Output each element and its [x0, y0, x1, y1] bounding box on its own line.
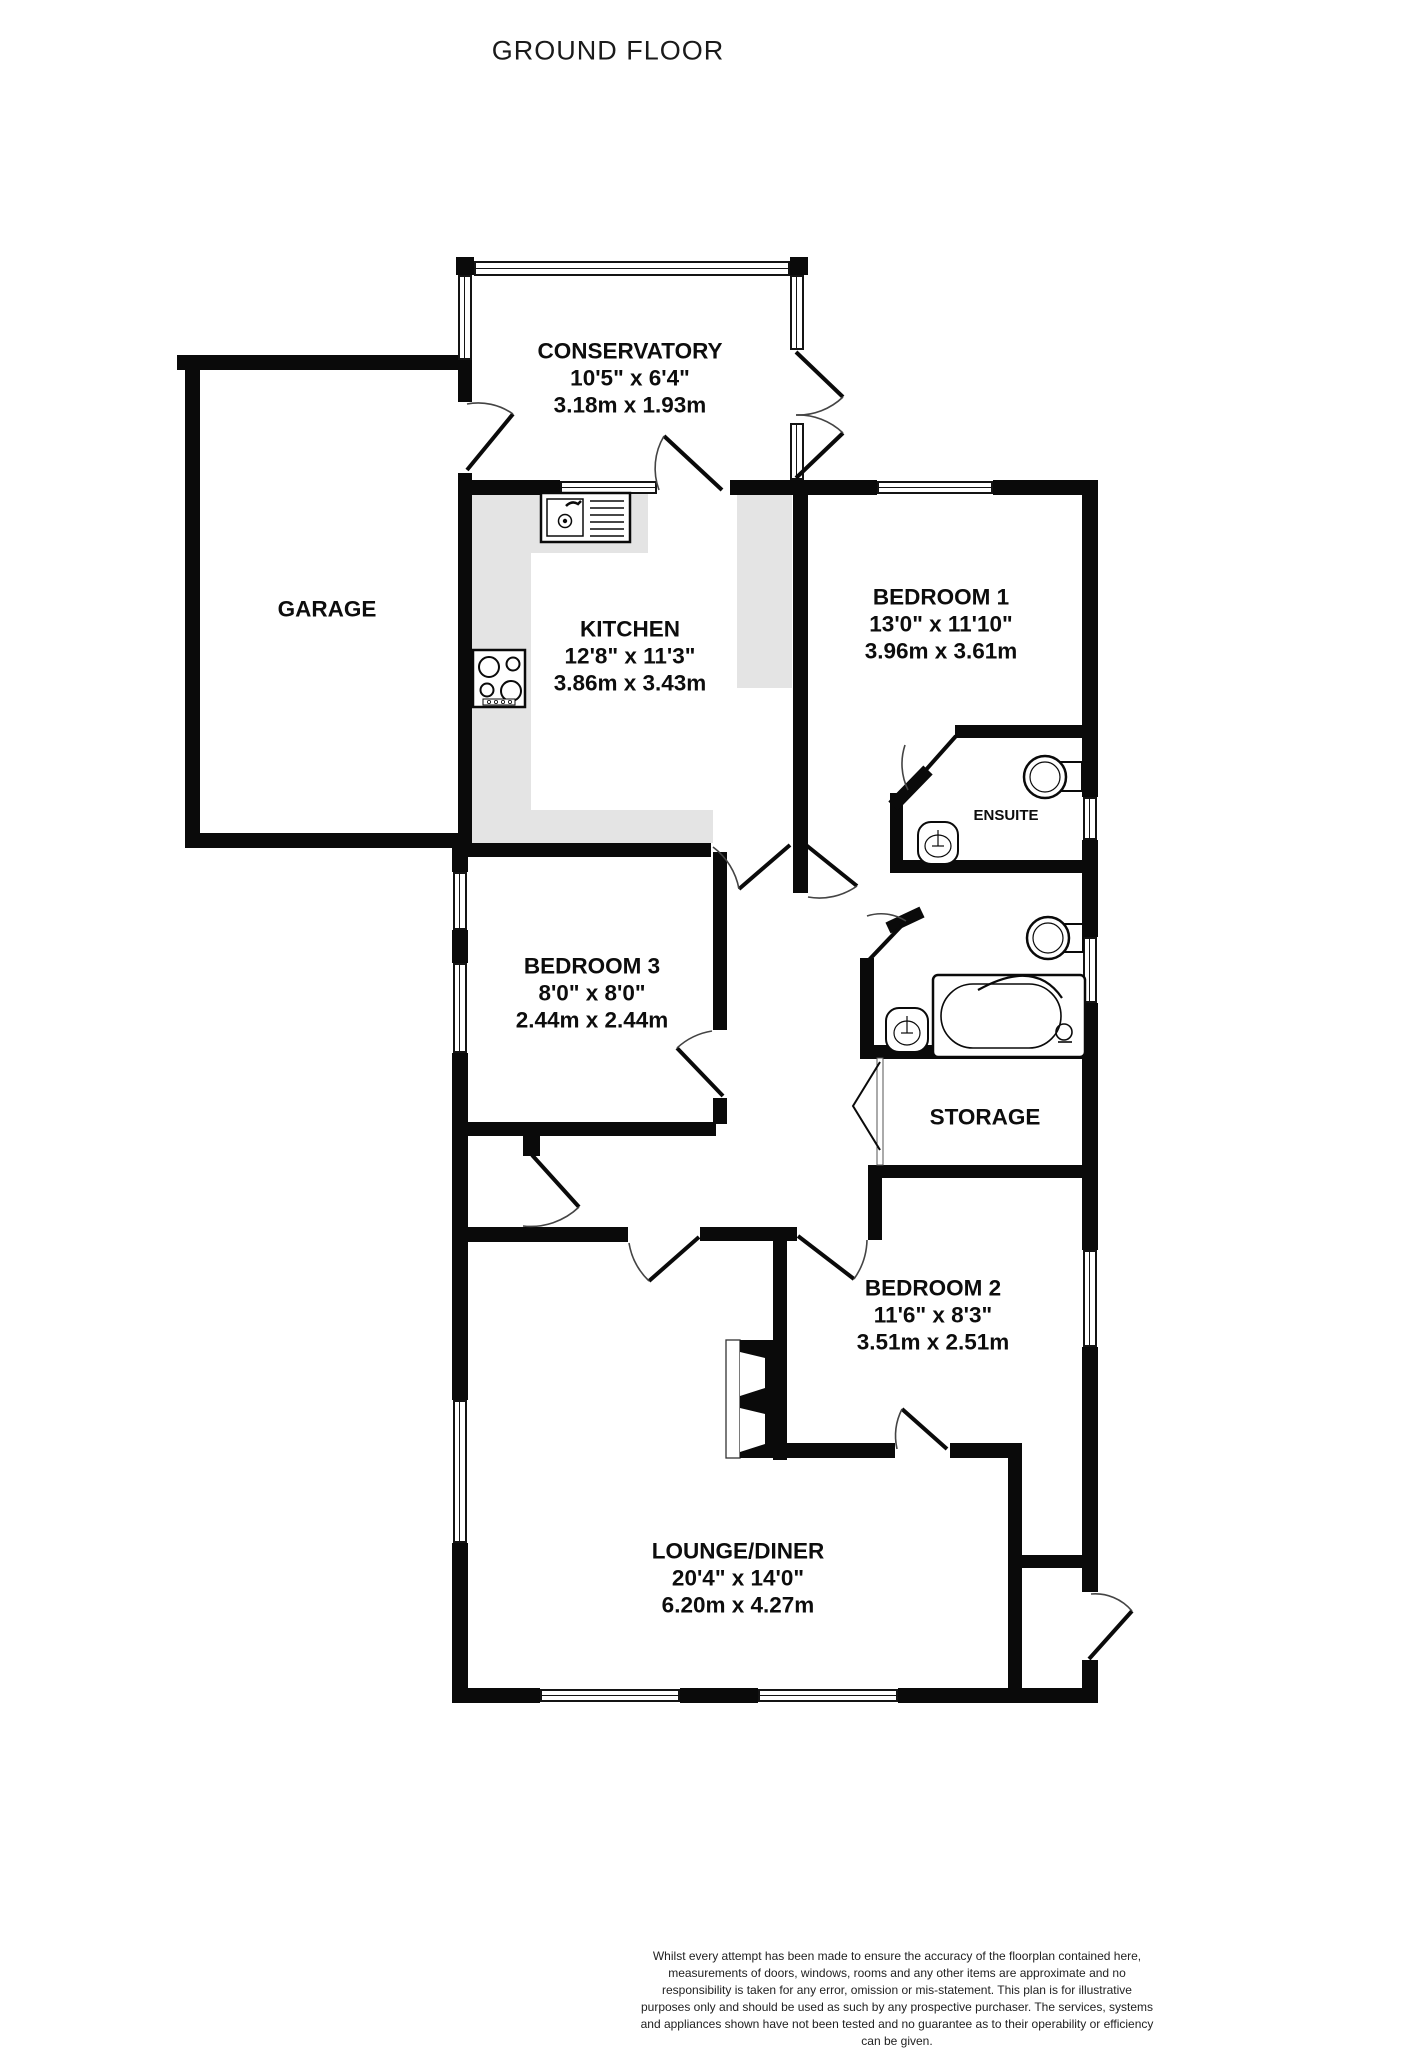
wall — [458, 370, 472, 402]
wall — [890, 860, 1098, 873]
room-label-bedroom2: BEDROOM 2 11'6" x 8'3" 3.51m x 2.51m — [857, 1275, 1010, 1356]
door-leaf — [649, 1237, 699, 1281]
window — [758, 1689, 898, 1702]
kitchen-counter-top — [531, 493, 648, 553]
wall — [452, 1227, 468, 1400]
room-size-imperial: 8'0" x 8'0" — [516, 980, 669, 1007]
door-leaf — [739, 845, 790, 889]
room-size-imperial: 10'5" x 6'4" — [537, 365, 722, 392]
chimney-breast — [740, 1340, 774, 1458]
room-size-imperial: 13'0" x 11'10" — [865, 611, 1018, 638]
door-leaf — [467, 414, 513, 470]
room-label-lounge: LOUNGE/DINER 20'4" x 14'0" 6.20m x 4.27m — [652, 1538, 825, 1619]
window — [560, 481, 657, 494]
door-leaf — [677, 1048, 723, 1096]
room-name: STORAGE — [930, 1104, 1041, 1131]
room-size-imperial: 20'4" x 14'0" — [652, 1565, 825, 1592]
window — [790, 423, 804, 480]
disclaimer: Whilst every attempt has been made to en… — [637, 1948, 1157, 2048]
room-name: CONSERVATORY — [537, 338, 722, 365]
wall — [458, 480, 560, 495]
wall — [1082, 480, 1098, 797]
window — [1083, 797, 1097, 840]
door-leaf — [1089, 1611, 1132, 1659]
room-label-bedroom3: BEDROOM 3 8'0" x 8'0" 2.44m x 2.44m — [516, 953, 669, 1034]
wall — [540, 1227, 628, 1242]
wall-corner-post — [456, 257, 474, 275]
room-label-garage: GARAGE — [278, 596, 377, 623]
wall — [793, 494, 808, 893]
wall — [452, 1543, 468, 1703]
wall — [730, 480, 808, 495]
room-size-metric: 6.20m x 4.27m — [652, 1592, 825, 1619]
kitchen-counter-right — [737, 495, 792, 688]
room-name: ENSUITE — [973, 807, 1038, 825]
wall-angled — [888, 912, 922, 928]
room-label-bedroom1: BEDROOM 1 13'0" x 11'10" 3.96m x 3.61m — [865, 584, 1018, 665]
wall — [458, 1227, 540, 1242]
wall — [860, 1045, 1098, 1059]
room-name: BEDROOM 2 — [857, 1275, 1010, 1302]
room-size-metric: 3.18m x 1.93m — [537, 392, 722, 419]
storage-jamb — [877, 1058, 883, 1165]
room-label-storage: STORAGE — [930, 1104, 1041, 1131]
door-leaf — [798, 1236, 854, 1279]
wall — [1008, 1452, 1022, 1703]
door-arc — [808, 886, 857, 898]
room-name: LOUNGE/DINER — [652, 1538, 825, 1565]
window — [1083, 1250, 1097, 1347]
kitchen-counter-left — [472, 482, 531, 843]
door-leaf — [867, 921, 906, 962]
wall — [868, 1165, 882, 1240]
wall — [860, 958, 874, 1058]
chimney-recess — [740, 1408, 765, 1452]
page-title: GROUND FLOOR — [492, 36, 725, 67]
wall — [185, 833, 472, 848]
bifold-door — [853, 1062, 880, 1150]
room-size-metric: 3.86m x 3.43m — [554, 670, 707, 697]
wall — [808, 480, 877, 495]
door-leaf — [664, 436, 722, 490]
toilet-icon — [918, 822, 958, 864]
door-leaf — [902, 1409, 947, 1449]
basin-icon — [1024, 756, 1082, 798]
floorplan-canvas: GROUND FLOOR — [0, 0, 1408, 2048]
door-leaf — [532, 1155, 579, 1207]
wall — [773, 1443, 895, 1458]
window — [790, 275, 804, 350]
wall — [452, 1688, 540, 1703]
room-size-imperial: 12'8" x 11'3" — [554, 643, 707, 670]
wall — [452, 930, 468, 963]
chimney-outline — [726, 1340, 740, 1458]
door-leaf — [796, 352, 843, 397]
plan-detail-layer — [0, 0, 1408, 2048]
door-arc — [854, 1240, 867, 1279]
disclaimer-text: Whilst every attempt has been made to en… — [637, 1948, 1157, 2048]
room-size-metric: 2.44m x 2.44m — [516, 1007, 669, 1034]
door-arc — [896, 1409, 902, 1449]
chimney-recess — [740, 1352, 765, 1396]
room-size-metric: 3.96m x 3.61m — [865, 638, 1018, 665]
door-leaf — [908, 736, 956, 790]
room-label-kitchen: KITCHEN 12'8" x 11'3" 3.86m x 3.43m — [554, 616, 707, 697]
wall — [458, 473, 472, 848]
door-arc — [677, 1031, 712, 1048]
wall — [452, 848, 468, 872]
door-arc — [467, 403, 513, 414]
wall — [458, 843, 711, 857]
window — [1083, 937, 1097, 1003]
window — [877, 481, 993, 494]
wall — [955, 725, 1098, 738]
door-arc — [629, 1243, 649, 1281]
window — [453, 1400, 467, 1543]
wall — [185, 370, 200, 848]
wall — [680, 1688, 758, 1703]
room-label-conservatory: CONSERVATORY 10'5" x 6'4" 3.18m x 1.93m — [537, 338, 722, 419]
room-size-metric: 3.51m x 2.51m — [857, 1329, 1010, 1356]
window — [540, 1689, 680, 1702]
wall — [898, 1688, 1098, 1703]
room-size-imperial: 11'6" x 8'3" — [857, 1302, 1010, 1329]
wall — [713, 1098, 727, 1124]
window — [458, 275, 472, 360]
door-arc — [902, 745, 908, 790]
door-arc — [1091, 1594, 1132, 1611]
room-label-ensuite: ENSUITE — [973, 807, 1038, 825]
room-name: BEDROOM 3 — [516, 953, 669, 980]
door-arc — [523, 1207, 579, 1226]
wall — [773, 1227, 787, 1460]
wall — [713, 852, 727, 1030]
room-name: KITCHEN — [554, 616, 707, 643]
door-leaf — [806, 845, 857, 886]
wall — [882, 1165, 1098, 1178]
wall-corner-post — [790, 257, 808, 275]
door-arc — [867, 914, 906, 921]
kitchen-counter-bottom — [472, 810, 713, 843]
wall — [452, 1053, 468, 1228]
wall — [458, 1122, 716, 1136]
room-name: BEDROOM 1 — [865, 584, 1018, 611]
wall — [177, 355, 472, 370]
window — [453, 963, 467, 1053]
window — [474, 261, 790, 276]
wall — [1082, 840, 1098, 937]
basin-icon — [1027, 917, 1083, 959]
room-name: GARAGE — [278, 596, 377, 623]
door-arc — [796, 397, 843, 415]
window — [453, 872, 467, 930]
wall — [1082, 1003, 1098, 1250]
